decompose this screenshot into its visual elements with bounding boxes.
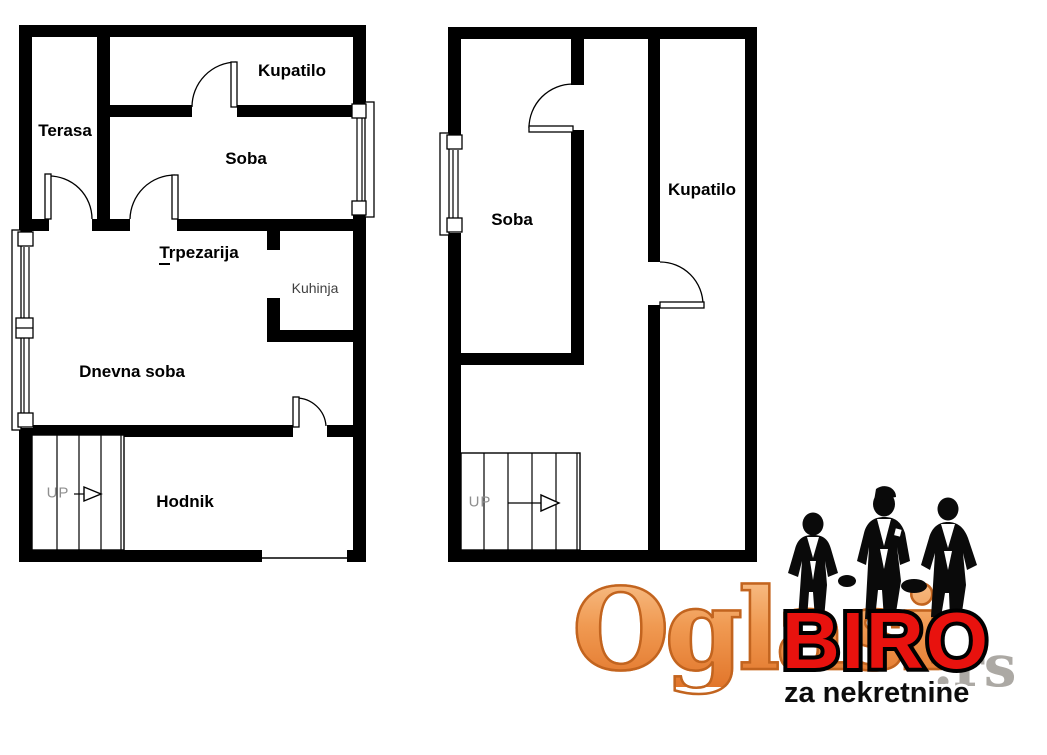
- label-trpezarija: Trpezarija: [159, 243, 238, 263]
- door-terasa: [45, 174, 92, 219]
- label-kuhinja: Kuhinja: [292, 280, 339, 296]
- left-plan-inner-walls: [19, 37, 353, 437]
- label-soba-left: Soba: [225, 149, 267, 169]
- door-kupatilo: [192, 62, 237, 107]
- right-plan-window: [440, 133, 462, 235]
- trpezarija-t-underline: [159, 263, 170, 265]
- agency-name: BIRO BIRO: [782, 601, 990, 681]
- label-kupatilo-right: Kupatilo: [668, 180, 736, 200]
- label-dnevna-soba: Dnevna soba: [79, 362, 185, 382]
- agency-watermark: Oglasi .rs: [570, 455, 1047, 755]
- label-kupatilo-left: Kupatilo: [258, 61, 326, 81]
- floorplan-canvas: Kupatilo Terasa Soba Trpezarija Kuhinja …: [0, 0, 1047, 755]
- agency-tagline: za nekretnine za nekretnine: [784, 679, 969, 708]
- label-soba-right: Soba: [491, 210, 533, 230]
- window-right: [352, 102, 374, 217]
- door-soba: [130, 175, 178, 219]
- left-plan-windows: [12, 102, 374, 430]
- door-soba-right: [529, 84, 573, 132]
- label-hodnik: Hodnik: [156, 492, 214, 512]
- window-left: [12, 230, 33, 430]
- hands-detail: [901, 579, 927, 593]
- door-kupatilo-right: [660, 262, 704, 308]
- door-hodnik: [293, 397, 326, 427]
- hands-detail: [838, 575, 856, 587]
- label-terasa: Terasa: [38, 121, 92, 141]
- label-up-left: UP: [47, 485, 70, 502]
- label-up-right: UP: [469, 494, 492, 511]
